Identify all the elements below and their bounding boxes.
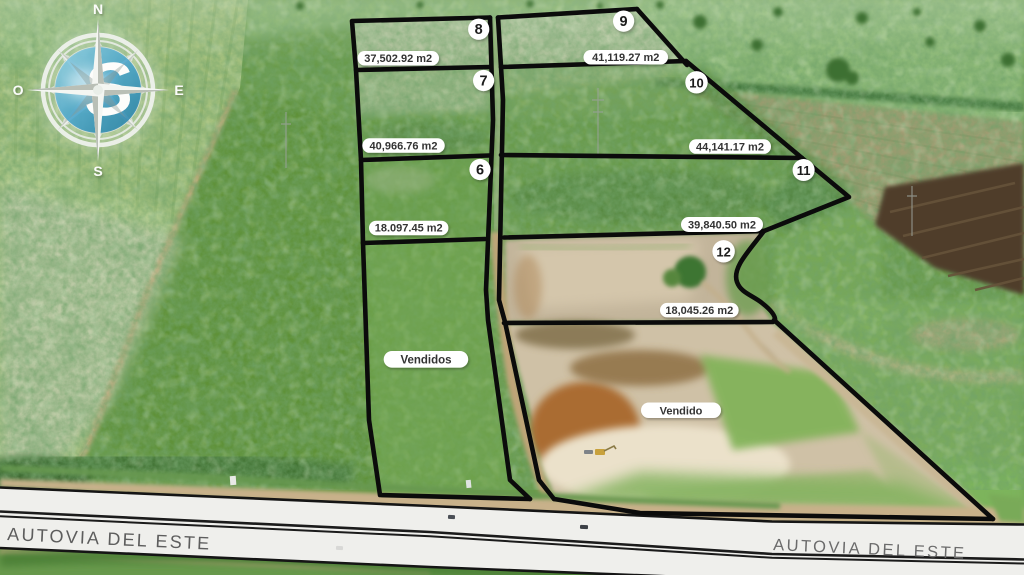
svg-text:18,045.26 m2: 18,045.26 m2 [665,305,733,317]
svg-text:O: O [13,82,24,98]
svg-text:6: 6 [476,163,484,179]
svg-text:S: S [93,163,102,179]
svg-text:N: N [93,1,103,17]
svg-text:44,141.17 m2: 44,141.17 m2 [696,141,764,153]
svg-text:11: 11 [797,163,811,178]
svg-text:9: 9 [620,14,628,30]
svg-text:41,119.27 m2: 41,119.27 m2 [592,52,659,64]
svg-text:8: 8 [475,22,483,38]
svg-text:37,502.92 m2: 37,502.92 m2 [364,53,432,65]
svg-text:18.097.45 m2: 18.097.45 m2 [375,223,443,235]
svg-text:10: 10 [689,75,703,90]
svg-text:E: E [174,82,183,98]
svg-text:Vendido: Vendido [660,405,703,417]
svg-text:40,966.76 m2: 40,966.76 m2 [370,140,438,152]
svg-text:12: 12 [716,244,730,259]
svg-text:7: 7 [480,74,488,90]
svg-text:39,840.50 m2: 39,840.50 m2 [688,219,756,231]
svg-text:Vendidos: Vendidos [400,355,451,367]
